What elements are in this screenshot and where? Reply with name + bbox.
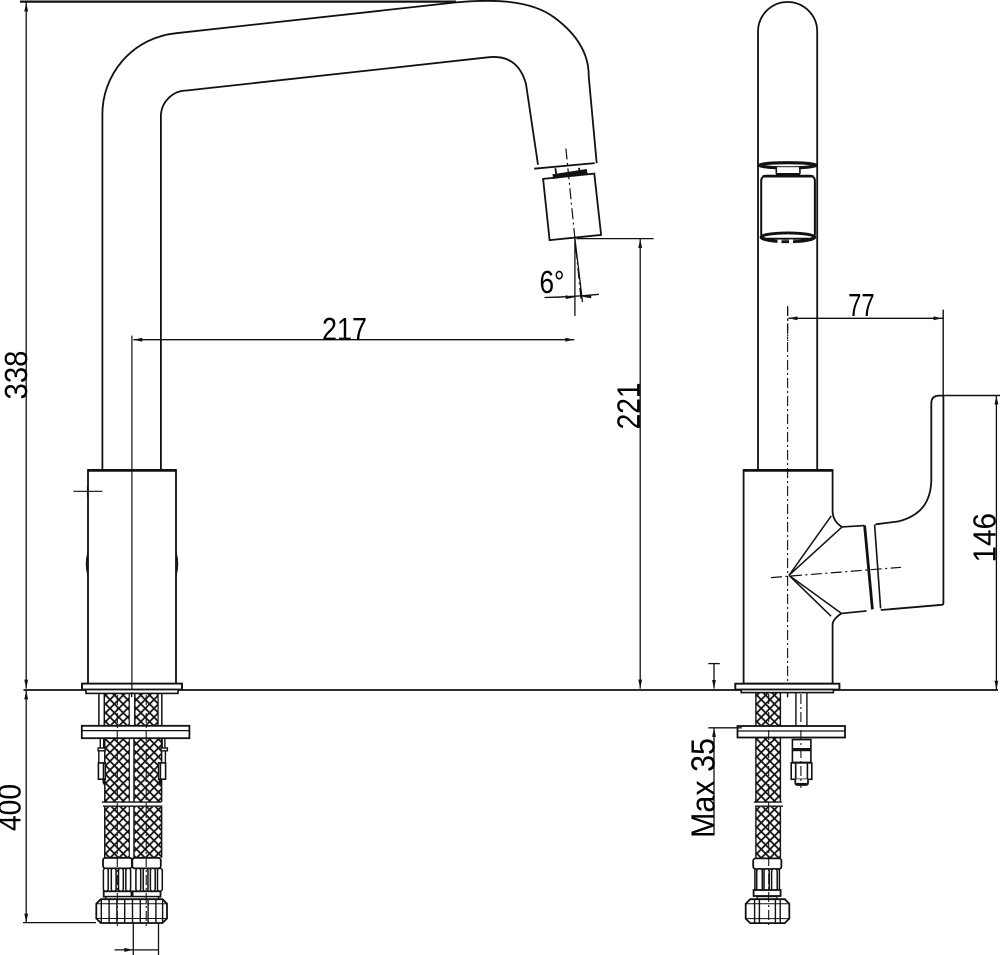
svg-text:6°: 6° [540,264,565,300]
svg-text:146: 146 [967,513,1000,563]
svg-text:217: 217 [322,311,367,347]
svg-text:221: 221 [610,382,646,429]
svg-text:Max 35: Max 35 [686,738,723,838]
svg-text:338: 338 [0,351,34,400]
svg-text:77: 77 [848,287,875,323]
svg-text:400: 400 [0,784,28,831]
